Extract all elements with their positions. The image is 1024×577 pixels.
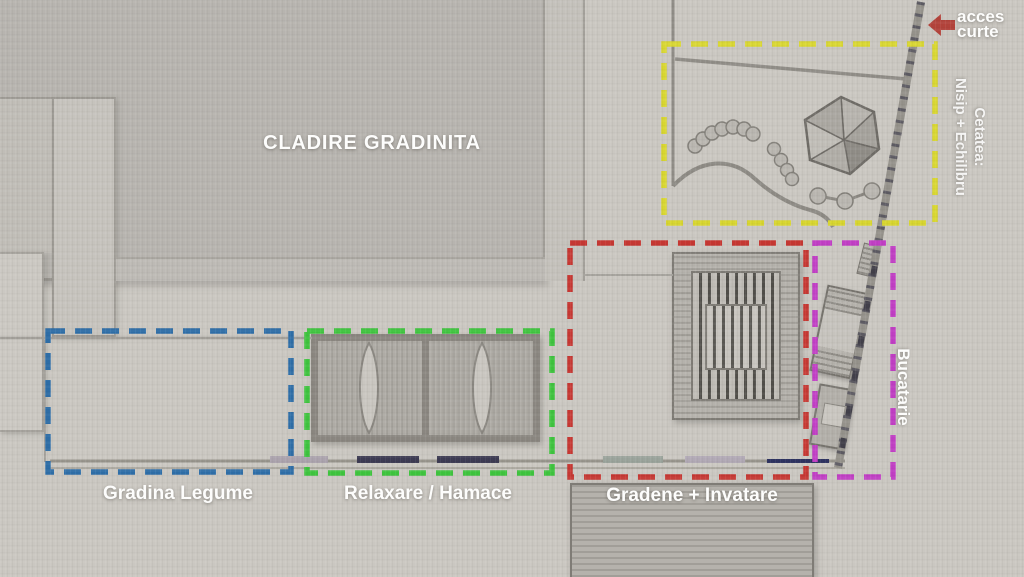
zone-label-cetatea: Cetatea: Nisip + Echilibru: [947, 52, 989, 222]
balance-stones: [810, 183, 880, 209]
cetatea-line1: Cetatea:: [970, 52, 989, 222]
access-line2: curte: [957, 24, 1004, 39]
zone-label-relaxare-hamace: Relaxare / Hamace: [308, 483, 548, 505]
zone-label-gradene-invatare: Gradene + Invatare: [570, 483, 814, 577]
site-plan: CLADIRE GRADINITA Gradina Legume Relaxar…: [0, 0, 1024, 577]
zone-label-bucatarie: Bucatarie: [891, 312, 915, 462]
zone-gradina-legume-box: [48, 331, 291, 472]
cetatea-line2: Nisip + Echilibru: [951, 52, 970, 222]
sand-path-curve: [673, 163, 833, 227]
building-label: CLADIRE GRADINITA: [222, 132, 522, 155]
stepping-stones: [688, 120, 799, 186]
hammock-lens: [360, 343, 491, 433]
access-label: acces curte: [957, 9, 1004, 39]
zone-relaxare-hamace-box: [307, 331, 552, 473]
climbing-dome-icon: [805, 97, 879, 174]
access-arrow-icon: [928, 14, 955, 36]
zone-label-gradina-legume: Gradina Legume: [68, 483, 288, 505]
zone-gradene-invatare-box: [570, 243, 806, 477]
sand-area-top-edge: [675, 59, 906, 79]
